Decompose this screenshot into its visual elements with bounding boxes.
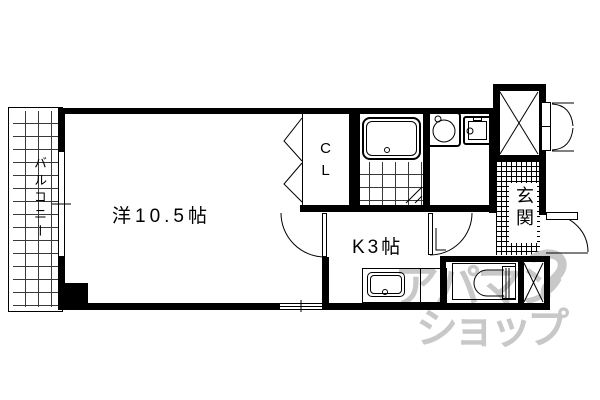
balcony-label: バルコニー — [30, 156, 49, 241]
hall-door-leaf — [428, 213, 433, 255]
kitchen-label: K3帖 — [352, 232, 403, 259]
pipe-shaft-x-mark — [524, 263, 543, 302]
elevator-door-leaf-upper — [541, 102, 551, 127]
elevator-door-leaf-lower — [541, 126, 551, 151]
closet-label: CL — [317, 140, 334, 184]
counter-edge-line — [436, 228, 446, 250]
washer-knob-icon — [435, 116, 441, 122]
main-room-label: 洋10.5帖 — [112, 201, 211, 228]
entrance-label: 玄関 — [511, 186, 537, 230]
bathroom-folding-door-icon — [406, 187, 422, 203]
entrance-door-leaf — [546, 212, 578, 220]
room-kitchen-door-arc — [281, 213, 325, 257]
toilet-tank-lines — [506, 268, 509, 298]
basin-drain-icon — [467, 128, 473, 134]
elevator-double-door-arcs — [552, 103, 574, 151]
floor-plan: アパマン ショップ — [0, 0, 600, 400]
entrance-door-arc — [546, 215, 588, 253]
toilet-bowl-icon — [474, 270, 504, 296]
room-kitchen-door-leaf — [322, 213, 327, 257]
elevator-x-mark — [500, 92, 538, 154]
bathtub-drain-icon — [385, 148, 390, 153]
closet-bifold-door-icon — [284, 118, 302, 202]
sink-drain-icon — [383, 290, 388, 295]
washer-drum-icon — [433, 120, 455, 142]
